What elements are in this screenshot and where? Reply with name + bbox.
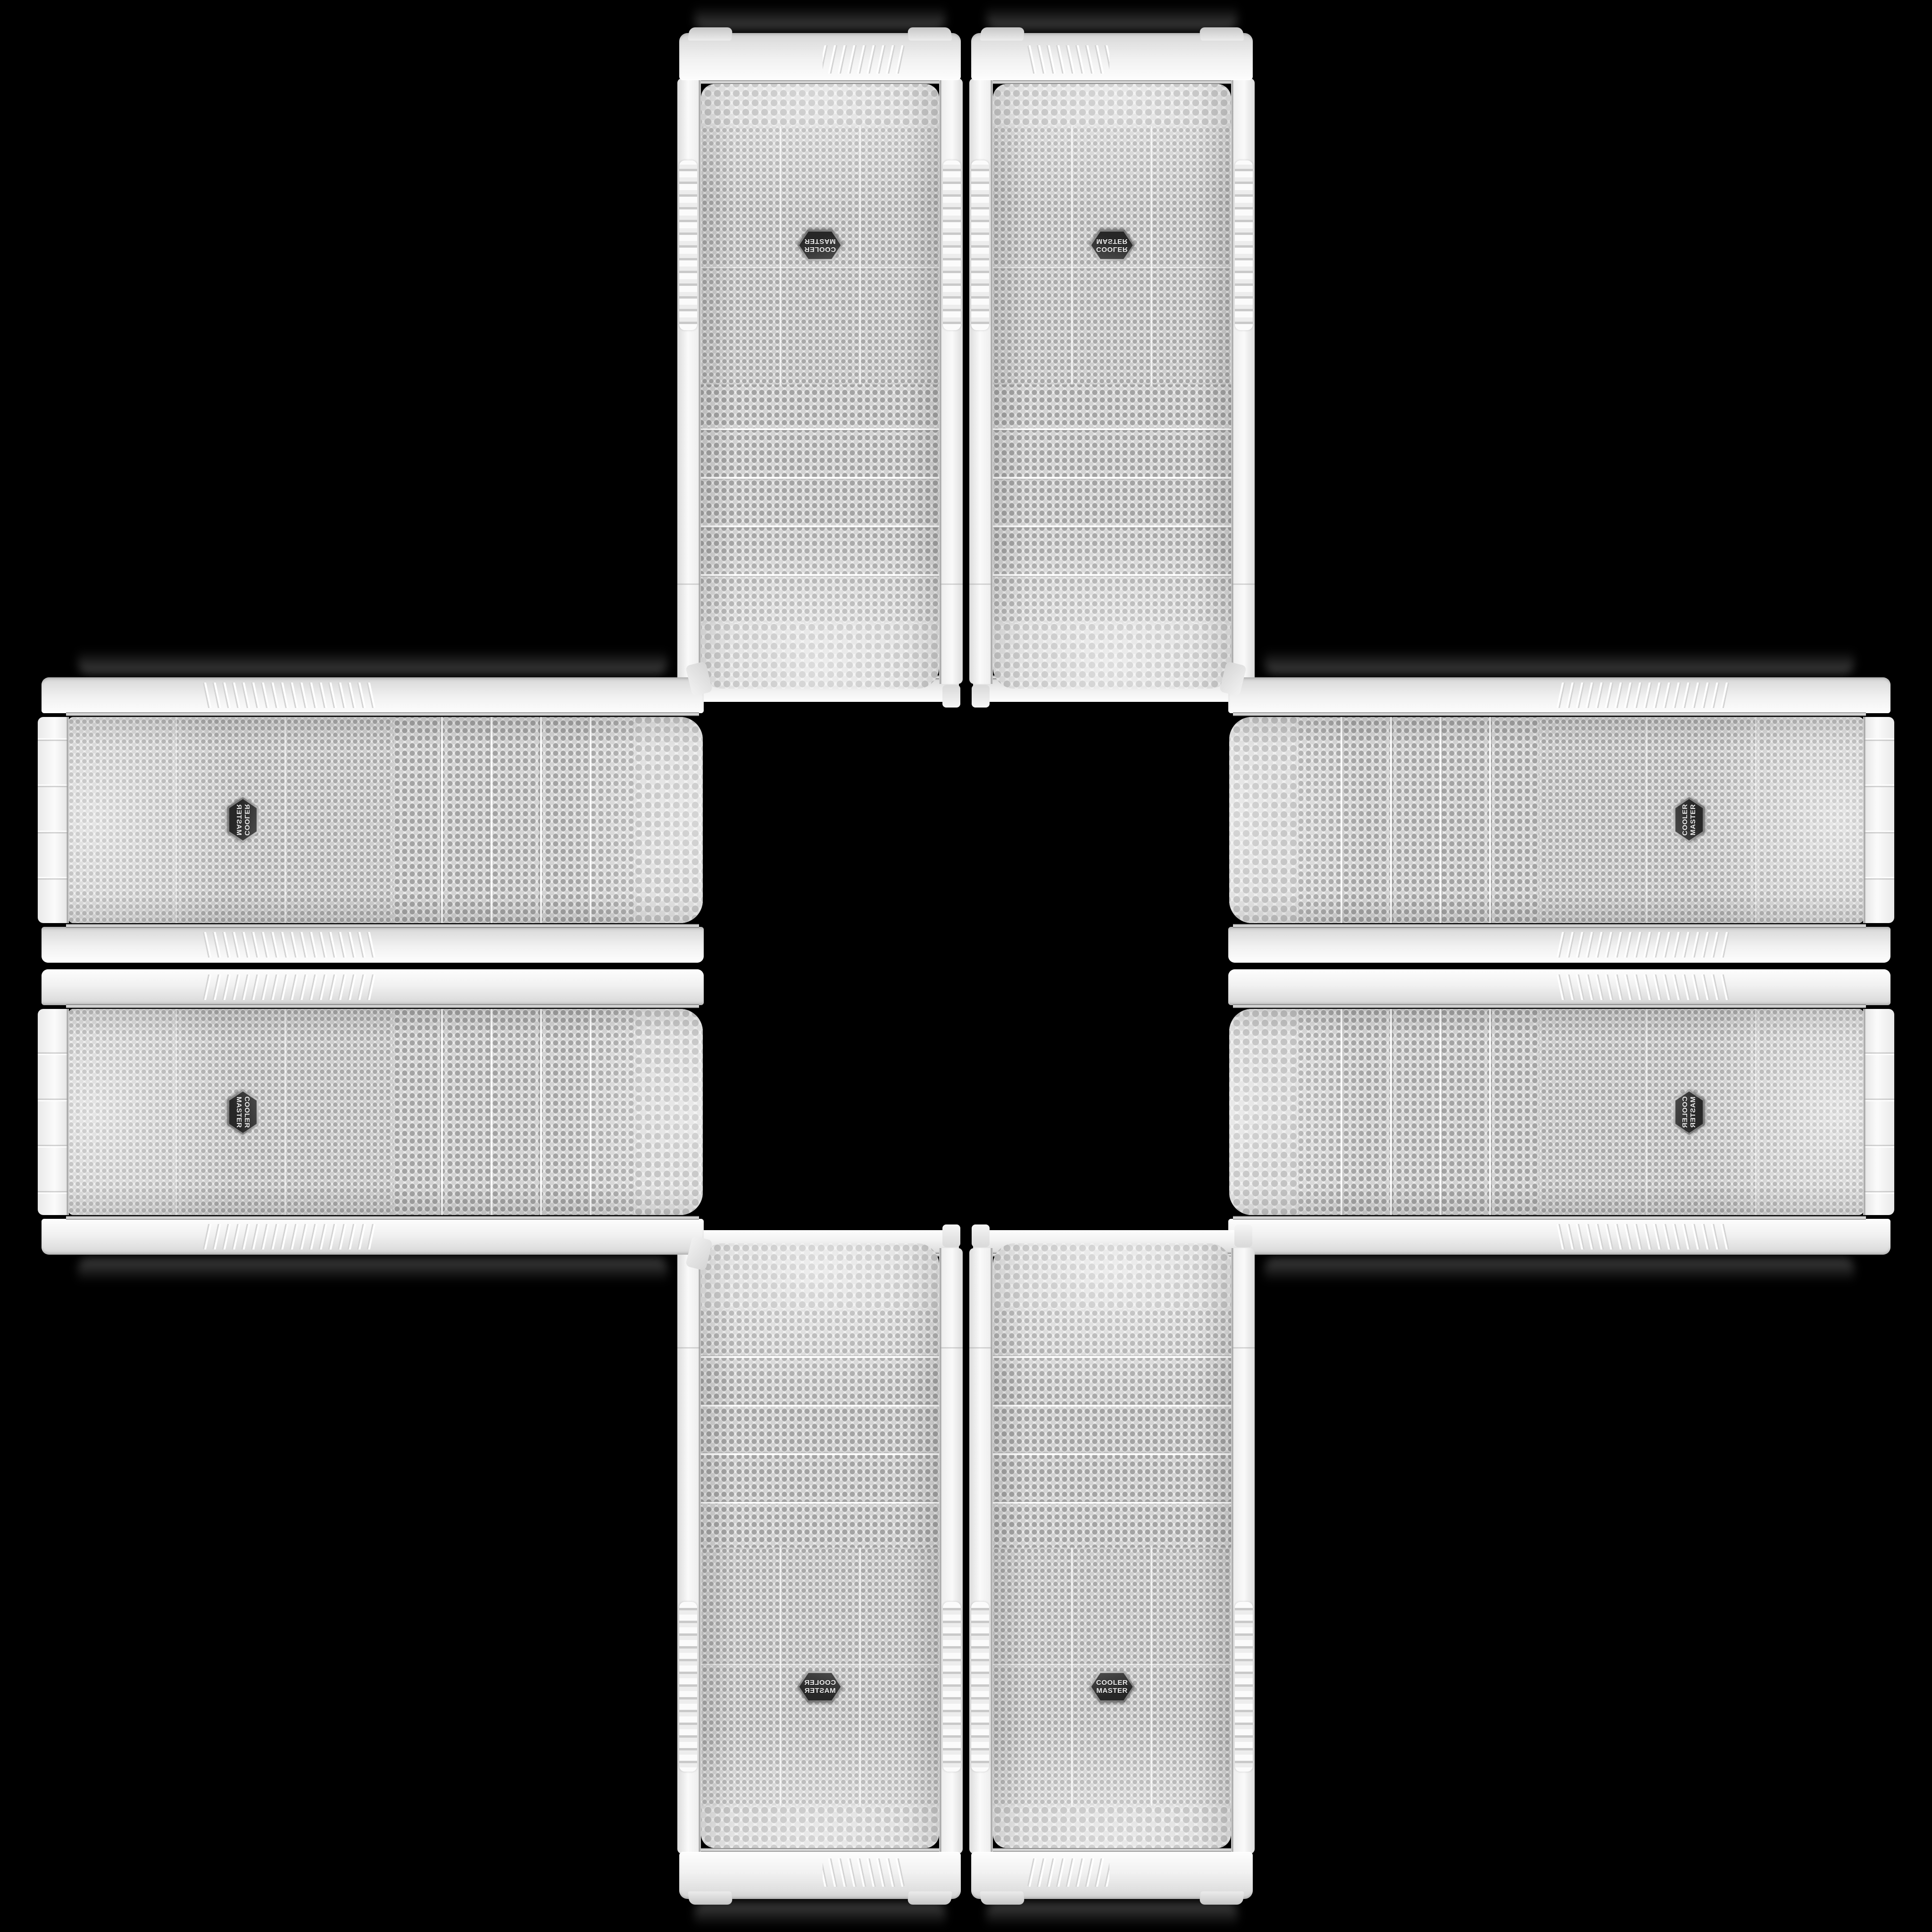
side-rail-left	[969, 78, 993, 684]
case-foot	[1199, 1891, 1244, 1905]
side-rail	[1863, 717, 1894, 923]
side-rail	[38, 717, 69, 923]
cooler-master-logo: COOLER MASTER	[798, 230, 843, 261]
case-left-top: COOLER MASTER	[38, 677, 708, 963]
fan-intake-mesh: COOLER MASTER	[68, 717, 393, 923]
chrome-trim	[977, 1848, 1247, 1852]
cooler-master-logo: COOLER MASTER	[227, 1090, 258, 1135]
side-rail-right	[677, 1248, 701, 1854]
cap-rib-grooves	[1027, 45, 1109, 74]
case-bottom-cap	[679, 33, 961, 80]
rail-grip-ribs	[971, 1602, 989, 1772]
chrome-trim	[66, 712, 699, 716]
side-rail-left	[939, 1248, 963, 1854]
rail-grip-ribs	[679, 160, 697, 330]
cooler-master-logo: COOLER MASTER	[1674, 1090, 1705, 1135]
mesh-end-wrap	[634, 717, 703, 923]
floor-reflection	[78, 643, 667, 674]
case-top-cap	[42, 927, 704, 963]
mesh-bottom-wrap	[701, 1806, 939, 1848]
logo-text-line2: MASTER	[1096, 238, 1127, 245]
drive-bay-covers	[393, 717, 634, 923]
cooler-master-logo: COOLER MASTER	[798, 1671, 843, 1702]
floor-reflection	[986, 0, 1237, 29]
case-bottom-cap	[679, 1852, 961, 1899]
drive-bay-covers	[393, 1009, 634, 1215]
logo-text-line1: COOLER	[1682, 804, 1689, 836]
fan-intake-mesh: COOLER MASTER	[993, 126, 1231, 384]
front-mesh-panel: COOLER MASTER	[701, 84, 939, 689]
logo-text-line1: COOLER	[243, 804, 250, 836]
case-bottom-cap	[971, 33, 1253, 80]
cap-rib-grooves	[202, 683, 376, 708]
rail-grip-ribs	[1235, 160, 1253, 330]
rail-grip-ribs	[971, 160, 989, 330]
cooler-master-logo: COOLER MASTER	[1674, 798, 1705, 843]
front-mesh-panel: COOLER MASTER	[1229, 1009, 1864, 1215]
chrome-trim	[685, 1848, 955, 1852]
fan-intake-mesh: COOLER MASTER	[993, 1548, 1231, 1806]
case-foot	[980, 27, 1024, 41]
mesh-top-wrap	[701, 1243, 939, 1309]
logo-text-line2: MASTER	[235, 804, 242, 835]
case-right-bottom: COOLER MASTER	[1224, 969, 1894, 1255]
drive-bay-covers	[701, 1309, 939, 1548]
fan-intake-mesh: COOLER MASTER	[701, 1548, 939, 1806]
fan-intake-mesh: COOLER MASTER	[68, 1009, 393, 1215]
cap-rib-grooves	[1556, 683, 1730, 708]
cap-rib-grooves	[1556, 932, 1730, 958]
chrome-trim	[1233, 924, 1866, 928]
side-rail	[1863, 1009, 1894, 1215]
floor-reflection	[78, 1258, 667, 1289]
chrome-trim	[66, 924, 699, 928]
logo-text-line1: COOLER	[804, 1679, 836, 1686]
drive-bay-covers	[993, 1309, 1231, 1548]
cap-rib-grooves	[1556, 1224, 1730, 1249]
chrome-trim	[66, 1216, 699, 1220]
side-rail-right	[1231, 78, 1255, 684]
product-collage-canvas: COOLER MASTER	[0, 0, 1932, 1932]
case-bottom-cap	[42, 677, 704, 713]
case-right-top: COOLER MASTER	[1224, 677, 1894, 963]
cap-corner-nub	[972, 1224, 990, 1247]
chrome-trim	[1233, 1004, 1866, 1008]
case-foot	[980, 1891, 1024, 1905]
logo-text-line1: COOLER	[1682, 1096, 1689, 1128]
cap-rib-grooves	[202, 1224, 376, 1249]
logo-text-line1: COOLER	[1096, 1679, 1128, 1686]
logo-text-line1: COOLER	[1096, 246, 1128, 253]
logo-text-line2: MASTER	[804, 238, 835, 245]
floor-reflection	[1265, 1258, 1854, 1289]
logo-text-line2: MASTER	[1690, 804, 1697, 835]
floor-reflection	[1265, 643, 1854, 674]
case-foot	[907, 27, 952, 41]
front-mesh-panel: COOLER MASTER	[68, 717, 703, 923]
cap-rib-grooves	[1027, 1858, 1109, 1887]
front-mesh-panel: COOLER MASTER	[993, 1243, 1231, 1848]
mesh-end-wrap	[634, 1009, 703, 1215]
chrome-trim	[1233, 712, 1866, 716]
case-bottom-cap	[42, 1219, 704, 1255]
chrome-trim	[977, 80, 1247, 84]
mesh-bottom-wrap	[993, 1806, 1231, 1848]
case-foot	[1199, 27, 1244, 41]
front-mesh-panel: COOLER MASTER	[68, 1009, 703, 1215]
case-top-left: COOLER MASTER	[677, 33, 963, 703]
cooler-master-logo: COOLER MASTER	[227, 798, 258, 843]
drive-bay-covers	[993, 384, 1231, 623]
case-top-cap	[42, 969, 704, 1005]
logo-text-line2: MASTER	[235, 1096, 242, 1127]
side-rail	[38, 1009, 69, 1215]
cooler-master-logo: COOLER MASTER	[1090, 230, 1135, 261]
mesh-top-wrap	[701, 623, 939, 689]
case-bottom-cap	[1228, 677, 1890, 713]
case-bottom-right: COOLER MASTER	[969, 1229, 1255, 1899]
mesh-end-wrap	[1229, 717, 1298, 923]
cap-rib-grooves	[202, 932, 376, 958]
cap-corner-nub	[942, 1224, 960, 1247]
logo-text-line1: COOLER	[243, 1096, 250, 1128]
case-bottom-left: COOLER MASTER	[677, 1229, 963, 1899]
case-left-bottom: COOLER MASTER	[38, 969, 708, 1255]
rail-grip-ribs	[943, 160, 961, 330]
mesh-top-wrap	[993, 623, 1231, 689]
case-bottom-cap	[971, 1852, 1253, 1899]
side-rail-left	[969, 1248, 993, 1854]
drive-bay-covers	[701, 384, 939, 623]
rail-grip-ribs	[679, 1602, 697, 1772]
case-bottom-cap	[1228, 1219, 1890, 1255]
mesh-bottom-wrap	[701, 84, 939, 126]
case-foot	[907, 1891, 952, 1905]
drive-bay-covers	[1298, 1009, 1539, 1215]
side-rail-right	[677, 78, 701, 684]
drive-bay-covers	[1298, 717, 1539, 923]
logo-text-line2: MASTER	[804, 1687, 835, 1694]
case-top-right: COOLER MASTER	[969, 33, 1255, 703]
mesh-end-wrap	[1229, 1009, 1298, 1215]
chrome-trim	[685, 80, 955, 84]
cap-corner-nub	[942, 685, 960, 708]
side-rail-right	[1231, 1248, 1255, 1854]
logo-text-line1: COOLER	[804, 246, 836, 253]
logo-text-line2: MASTER	[1096, 1687, 1127, 1694]
case-foot	[688, 1891, 733, 1905]
floor-reflection	[694, 0, 945, 29]
case-top-cap	[1228, 969, 1890, 1005]
chrome-trim	[66, 1004, 699, 1008]
case-top-cap	[1228, 927, 1890, 963]
mesh-top-wrap	[993, 1243, 1231, 1309]
front-mesh-panel: COOLER MASTER	[1229, 717, 1864, 923]
floor-reflection	[694, 1903, 945, 1932]
mesh-bottom-wrap	[993, 84, 1231, 126]
cap-corner-nub	[1234, 1224, 1252, 1247]
cap-rib-grooves	[823, 45, 905, 74]
rail-grip-ribs	[943, 1602, 961, 1772]
front-mesh-panel: COOLER MASTER	[701, 1243, 939, 1848]
fan-intake-mesh: COOLER MASTER	[1539, 717, 1864, 923]
front-mesh-panel: COOLER MASTER	[993, 84, 1231, 689]
cooler-master-logo: COOLER MASTER	[1090, 1671, 1135, 1702]
side-rail-left	[939, 78, 963, 684]
cap-rib-grooves	[823, 1858, 905, 1887]
logo-text-line2: MASTER	[1690, 1096, 1697, 1127]
case-foot	[688, 27, 733, 41]
cap-corner-nub	[972, 685, 990, 708]
fan-intake-mesh: COOLER MASTER	[701, 126, 939, 384]
cap-rib-grooves	[202, 974, 376, 1000]
chrome-trim	[1233, 1216, 1866, 1220]
floor-reflection	[986, 1903, 1237, 1932]
rail-grip-ribs	[1235, 1602, 1253, 1772]
fan-intake-mesh: COOLER MASTER	[1539, 1009, 1864, 1215]
cap-rib-grooves	[1556, 974, 1730, 1000]
